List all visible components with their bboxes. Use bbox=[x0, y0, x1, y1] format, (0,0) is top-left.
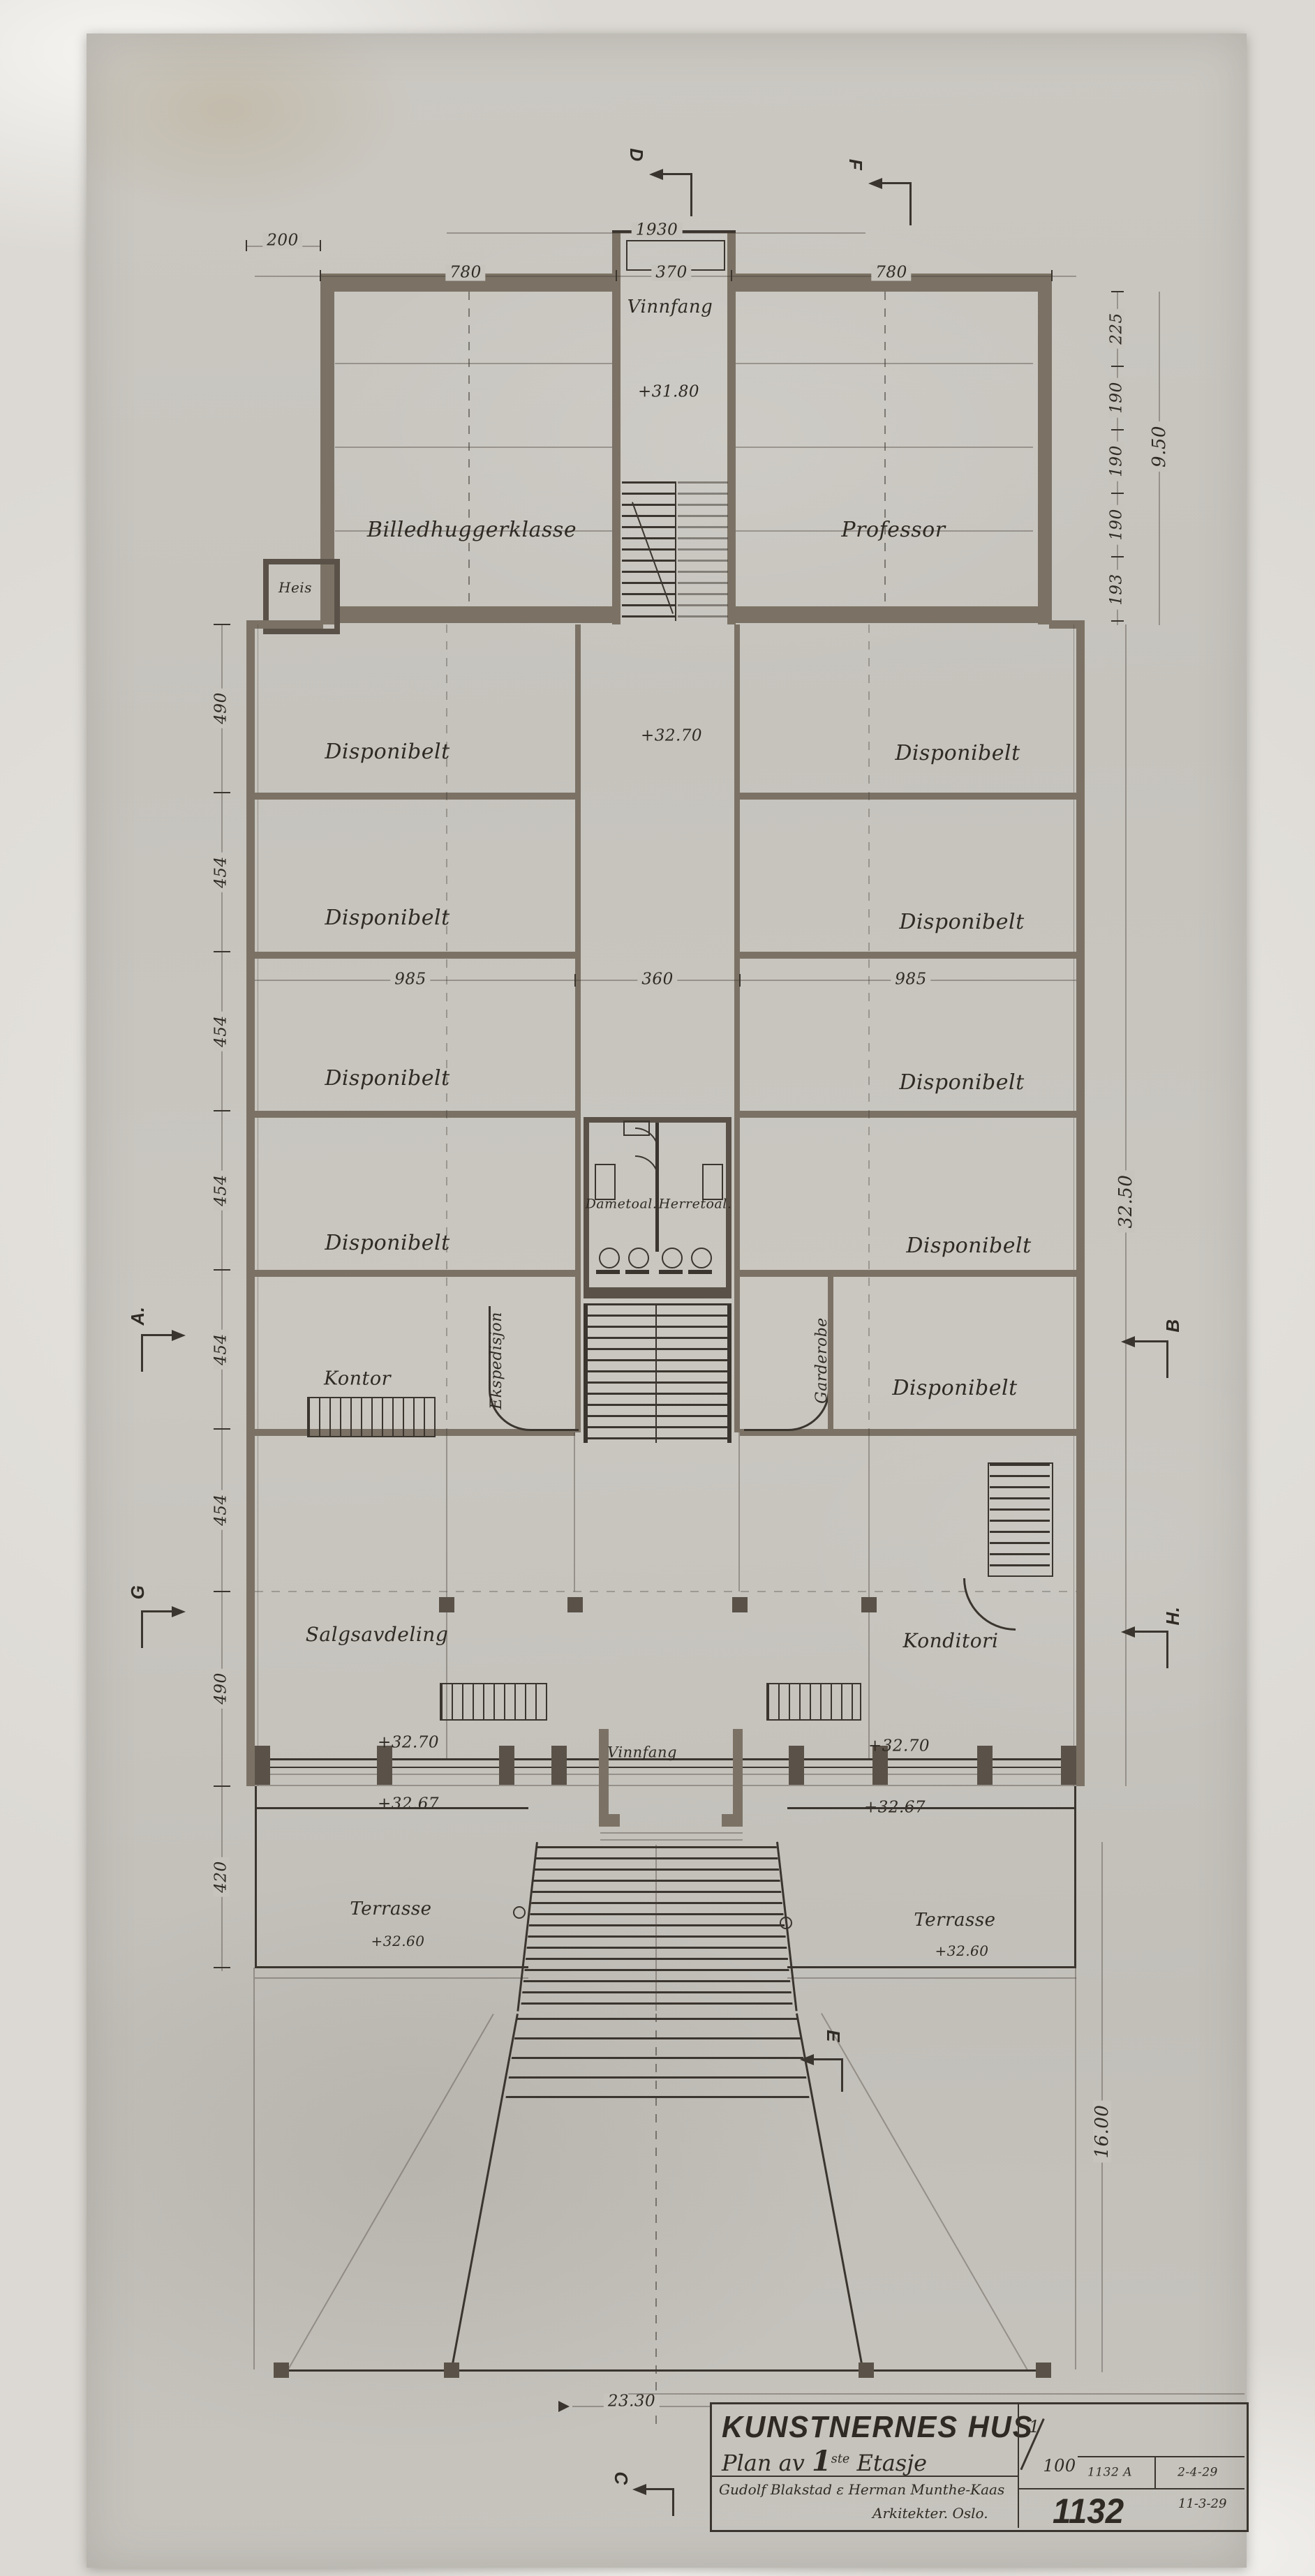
room-label-dametoal: Dametoal. bbox=[586, 1198, 657, 1211]
dim-right-upper-0: 225 bbox=[1109, 308, 1125, 348]
dim-right-main-total: 32.50 bbox=[1117, 1171, 1135, 1233]
dim-right-upper-1: 190 bbox=[1109, 377, 1125, 417]
dimension-tick bbox=[320, 240, 321, 251]
wall-segment bbox=[612, 230, 621, 624]
wall-segment bbox=[731, 606, 1052, 623]
room-label-disponibelt: Disponibelt bbox=[325, 1233, 450, 1254]
wall-segment bbox=[740, 793, 1076, 800]
wc-fixture bbox=[662, 1248, 683, 1268]
dim-top-center: 370 bbox=[651, 265, 691, 281]
corridor-line bbox=[574, 1432, 575, 1592]
section-marker-b: B bbox=[1164, 1319, 1182, 1332]
column-marker bbox=[861, 1597, 877, 1612]
stair-divider bbox=[655, 1303, 657, 1443]
dim-left-5: 454 bbox=[214, 1490, 230, 1529]
scale-denominator: 100 bbox=[1043, 2457, 1076, 2474]
elevation-hall-left: +32.70 bbox=[378, 1735, 439, 1751]
room-label-disponibelt: Disponibelt bbox=[899, 1072, 1024, 1093]
column-marker bbox=[1036, 2362, 1051, 2378]
section-marker-e: E bbox=[824, 2030, 842, 2042]
column-marker bbox=[859, 2362, 874, 2378]
dimension-tick bbox=[574, 974, 576, 987]
dim-right-upper-4: 193 bbox=[1109, 569, 1125, 609]
dimension-line bbox=[221, 624, 223, 1971]
drawing-sheet bbox=[87, 33, 1247, 2568]
dim-left-3: 454 bbox=[214, 1170, 230, 1210]
vestibule-step bbox=[722, 1814, 743, 1827]
section-arrow-line bbox=[1134, 1340, 1168, 1342]
grid-line bbox=[868, 1432, 870, 1758]
section-arrow-stem bbox=[141, 1610, 143, 1648]
terrace-side bbox=[1074, 1786, 1076, 1968]
column-marker bbox=[444, 2362, 459, 2378]
section-arrow bbox=[172, 1330, 186, 1341]
elevation-terrace-left: +32.60 bbox=[371, 1934, 424, 1948]
dim-right-upper-3: 190 bbox=[1109, 504, 1125, 544]
dim-left-2: 454 bbox=[214, 1011, 230, 1051]
grand-stair-treads bbox=[521, 1846, 793, 2008]
dim-right-upper-total: 9.50 bbox=[1150, 421, 1168, 472]
dimension-tick bbox=[1111, 556, 1124, 557]
section-arrow-line bbox=[812, 2058, 843, 2060]
dim-middle-center: 360 bbox=[637, 972, 677, 988]
corridor-line bbox=[738, 1432, 740, 1592]
grid-line bbox=[868, 624, 870, 1432]
dimension-tick bbox=[1111, 429, 1124, 430]
section-arrow bbox=[800, 2054, 814, 2065]
room-label-disponibelt: Disponibelt bbox=[895, 743, 1020, 764]
forecourt-side-outer bbox=[1075, 1968, 1076, 2369]
guide-line bbox=[335, 363, 614, 364]
grid-line bbox=[255, 1591, 1076, 1592]
title-block-plan-title: Plan av 1ste Etasje bbox=[722, 2445, 927, 2478]
elevation-hall-left-outer: +32.67 bbox=[378, 1797, 439, 1813]
wall-segment bbox=[246, 624, 255, 1786]
section-arrow-stem bbox=[841, 2058, 843, 2092]
plan-suffix: Etasje bbox=[856, 2450, 927, 2476]
dimension-tick bbox=[246, 240, 247, 251]
plan-floor-sup: ste bbox=[831, 2452, 850, 2466]
wall-segment bbox=[727, 230, 736, 624]
room-label-terrasse-left: Terrasse bbox=[350, 1900, 431, 1918]
room-label-konditori: Konditori bbox=[903, 1631, 999, 1651]
wc-base bbox=[596, 1270, 620, 1274]
section-marker-g: G bbox=[128, 1585, 147, 1600]
room-label-salgsavdeling: Salgsavdeling bbox=[306, 1625, 449, 1645]
room-label-kontor: Kontor bbox=[324, 1370, 391, 1388]
dimension-tick bbox=[1111, 291, 1124, 292]
room-label-professor: Professor bbox=[841, 520, 945, 541]
corridor-wall bbox=[734, 624, 740, 1432]
architects-line2: Arkitekter. Oslo. bbox=[872, 2505, 988, 2522]
counter-rack bbox=[766, 1683, 861, 1721]
terrace-step-line bbox=[255, 1977, 528, 1979]
grand-stair-lower-treads bbox=[505, 2018, 810, 2100]
wall-segment bbox=[584, 1287, 731, 1298]
terrace-edge bbox=[255, 1807, 528, 1809]
grid-line bbox=[884, 292, 886, 606]
dimension-tick bbox=[731, 270, 732, 281]
dimension-arrow bbox=[558, 2401, 570, 2412]
title-block-divider bbox=[1078, 2456, 1245, 2457]
dimension-tick bbox=[1051, 270, 1053, 281]
revision-number: 1132 A bbox=[1087, 2467, 1132, 2479]
stair-wall bbox=[584, 1303, 588, 1443]
section-marker-a: A. bbox=[128, 1307, 147, 1326]
column-marker bbox=[274, 2362, 289, 2378]
section-arrow-stem bbox=[672, 2488, 674, 2516]
section-arrow-line bbox=[881, 182, 912, 184]
column-circle bbox=[513, 1906, 526, 1919]
section-arrow-stem bbox=[1166, 1340, 1168, 1378]
drawing-number: 1132 bbox=[1053, 2491, 1124, 2531]
dimension-tick bbox=[320, 270, 321, 281]
wall-segment bbox=[320, 606, 616, 623]
stair-divider bbox=[675, 481, 676, 621]
section-arrow bbox=[172, 1606, 186, 1617]
pilaster bbox=[551, 1746, 567, 1785]
drawing-date: 11-3-29 bbox=[1178, 2496, 1226, 2511]
vestibule-step-line bbox=[600, 1832, 743, 1834]
dim-top-overall: 1930 bbox=[632, 223, 683, 239]
section-arrow-line bbox=[1134, 1631, 1168, 1633]
dim-left-1: 454 bbox=[214, 852, 230, 892]
pilaster bbox=[255, 1746, 270, 1785]
dimension-tick bbox=[1111, 620, 1124, 622]
wall-segment bbox=[828, 1273, 833, 1432]
wall-segment bbox=[255, 793, 575, 800]
wall-segment bbox=[740, 952, 1076, 959]
elevation-upper-vestibule: +31.80 bbox=[638, 384, 699, 400]
pilaster bbox=[977, 1746, 993, 1785]
vestibule-step bbox=[599, 1814, 620, 1827]
dim-middle-right: 985 bbox=[891, 972, 930, 988]
terrace-edge bbox=[255, 1966, 528, 1968]
column-marker bbox=[567, 1597, 583, 1612]
column-marker bbox=[732, 1597, 748, 1612]
wall-segment bbox=[1049, 620, 1085, 629]
title-block-top-line bbox=[628, 2393, 1245, 2395]
forecourt-bottom-line bbox=[279, 2369, 1050, 2372]
section-arrow bbox=[868, 178, 882, 189]
dim-right-lower-total: 16.00 bbox=[1093, 2101, 1111, 2163]
elevation-terrace-right: +32.60 bbox=[935, 1944, 988, 1958]
terrace-edge bbox=[787, 1807, 1076, 1809]
room-label-disponibelt: Disponibelt bbox=[325, 742, 450, 763]
pilaster bbox=[789, 1746, 804, 1785]
dim-left-4: 454 bbox=[214, 1329, 230, 1369]
dim-top-right-wing: 780 bbox=[871, 265, 911, 281]
sink-fixture bbox=[595, 1164, 616, 1200]
stair-wall bbox=[727, 1303, 731, 1443]
wall-segment bbox=[740, 1111, 1076, 1118]
title-block-divider bbox=[1154, 2456, 1156, 2488]
forecourt-side-outer bbox=[253, 1968, 255, 2369]
room-label-vinnfang-upper: Vinnfang bbox=[627, 298, 713, 316]
wc-base bbox=[688, 1270, 712, 1274]
section-arrow bbox=[1121, 1626, 1135, 1638]
guide-line bbox=[335, 447, 614, 448]
section-marker-h: H. bbox=[1164, 1607, 1182, 1626]
section-arrow-line bbox=[645, 2488, 674, 2490]
room-label-billedhuggerklasse: Billedhuggerklasse bbox=[367, 520, 577, 541]
guide-line bbox=[733, 447, 1033, 448]
dimension-tick bbox=[214, 1591, 230, 1592]
dimension-tick bbox=[214, 951, 230, 952]
section-arrow-stem bbox=[1166, 1631, 1168, 1668]
dimension-tick bbox=[214, 1428, 230, 1430]
wall-segment bbox=[1076, 624, 1085, 1786]
section-arrow-stem bbox=[141, 1334, 143, 1372]
dim-left-6: 490 bbox=[214, 1668, 230, 1708]
room-label-heis: Heis bbox=[278, 581, 312, 594]
title-block-divider bbox=[1018, 2402, 1019, 2528]
dim-top-offset: 200 bbox=[262, 233, 302, 249]
terrace-edge bbox=[787, 1966, 1076, 1968]
wc-base bbox=[659, 1270, 683, 1274]
section-arrow-line bbox=[662, 173, 692, 175]
dimension-tick bbox=[214, 1110, 230, 1111]
terrace-step-line bbox=[787, 1977, 1076, 1979]
elevation-hall-right: +32.70 bbox=[868, 1739, 930, 1755]
title-block-divider bbox=[710, 2476, 1018, 2477]
dimension-tick bbox=[214, 1785, 230, 1787]
wc-fixture bbox=[691, 1248, 712, 1268]
section-arrow-stem bbox=[909, 182, 912, 225]
section-arrow bbox=[1121, 1336, 1135, 1347]
section-marker-d: D bbox=[627, 148, 646, 161]
section-marker-c: C bbox=[612, 2471, 630, 2485]
section-arrow-line bbox=[141, 1610, 173, 1612]
room-label-disponibelt: Disponibelt bbox=[325, 1068, 450, 1089]
dimension-tick bbox=[214, 1269, 230, 1271]
pilaster bbox=[499, 1746, 514, 1785]
wall-segment bbox=[740, 1270, 1076, 1277]
room-label-ekspedisjon: Ekspedisjon bbox=[489, 1312, 505, 1409]
wall-segment bbox=[255, 952, 575, 959]
dimension-tick bbox=[214, 624, 230, 625]
dim-top-left-wing: 780 bbox=[445, 265, 485, 281]
kontor-counter bbox=[307, 1397, 436, 1437]
wall-segment bbox=[584, 1117, 731, 1123]
dimension-tick bbox=[1111, 493, 1124, 494]
section-arrow bbox=[632, 2484, 646, 2495]
dim-left-0: 490 bbox=[214, 688, 230, 728]
room-label-vinnfang-lower: Vinnfang bbox=[607, 1746, 677, 1760]
side-stair-frame bbox=[988, 1462, 1053, 1577]
pilaster bbox=[1061, 1746, 1076, 1785]
dim-right-upper-2: 190 bbox=[1109, 441, 1125, 481]
title-block-project: KUNSTNERNES HUS bbox=[722, 2410, 1034, 2445]
guide-line bbox=[733, 363, 1033, 364]
room-label-disponibelt: Disponibelt bbox=[325, 908, 450, 929]
room-label-disponibelt: Disponibelt bbox=[906, 1236, 1031, 1257]
revision-date: 2-4-29 bbox=[1177, 2467, 1218, 2479]
wall-segment bbox=[255, 1270, 575, 1277]
wall-segment bbox=[1038, 274, 1052, 624]
room-label-disponibelt: Disponibelt bbox=[899, 912, 1024, 933]
dimension-tick bbox=[214, 792, 230, 793]
section-marker-f: F bbox=[847, 159, 865, 170]
column-marker bbox=[439, 1597, 454, 1612]
wall-segment bbox=[255, 1111, 575, 1118]
grid-line bbox=[468, 292, 470, 606]
dim-left-7: 420 bbox=[214, 1857, 230, 1896]
main-stair-treads bbox=[588, 1303, 727, 1443]
terrace-side bbox=[255, 1786, 257, 1968]
dimension-tick bbox=[214, 1967, 230, 1968]
title-block-divider bbox=[1018, 2488, 1245, 2489]
section-arrow-line bbox=[141, 1334, 173, 1336]
axis-line bbox=[655, 1845, 657, 2011]
axis-line bbox=[655, 2014, 657, 2432]
dimension-tick bbox=[1111, 366, 1124, 367]
dim-bottom: 23.30 bbox=[604, 2394, 660, 2410]
counter-rack bbox=[440, 1683, 547, 1721]
section-arrow bbox=[649, 169, 663, 180]
wc-fixture bbox=[628, 1248, 649, 1268]
plan-floor: 1 bbox=[812, 2445, 831, 2478]
wc-fixture bbox=[599, 1248, 620, 1268]
room-label-disponibelt: Disponibelt bbox=[892, 1378, 1017, 1399]
vestibule-step-line bbox=[600, 1839, 743, 1841]
dimension-tick bbox=[739, 974, 741, 987]
elevation-corridor: +32.70 bbox=[641, 728, 702, 744]
section-arrow-stem bbox=[690, 173, 692, 216]
wc-base bbox=[625, 1270, 649, 1274]
room-label-herretoal: Herretoal. bbox=[659, 1198, 732, 1211]
vestibule-wall bbox=[733, 1729, 743, 1827]
stair-treads-upper-dashed bbox=[678, 481, 728, 621]
plan-prefix: Plan av bbox=[722, 2450, 805, 2476]
architects-line1: Gudolf Blakstad ε Herman Munthe-Kaas bbox=[719, 2481, 1004, 2498]
dimension-tick bbox=[616, 270, 617, 281]
dim-middle-left: 985 bbox=[390, 972, 430, 988]
sink-fixture bbox=[702, 1164, 723, 1200]
room-label-terrasse-right: Terrasse bbox=[914, 1911, 995, 1929]
floor-level-line bbox=[255, 1785, 1076, 1786]
